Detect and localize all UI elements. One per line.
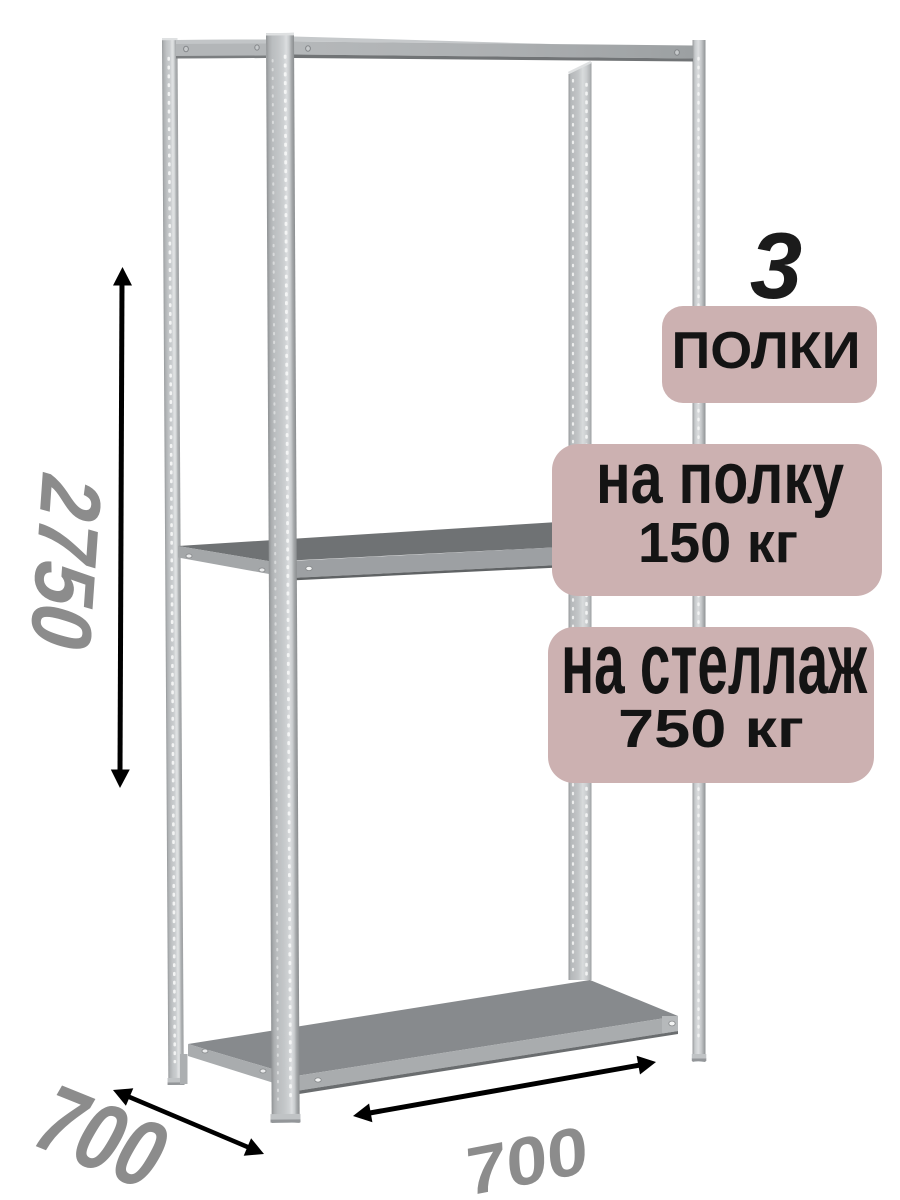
svg-text:на полку: на полку — [596, 439, 844, 519]
svg-text:3: 3 — [750, 213, 802, 318]
svg-text:на стеллаж: на стеллаж — [561, 616, 868, 712]
svg-text:150 кг: 150 кг — [638, 511, 798, 575]
svg-text:ПОЛКИ: ПОЛКИ — [672, 322, 861, 380]
svg-text:2750: 2750 — [13, 464, 119, 663]
svg-text:750 кг: 750 кг — [618, 699, 804, 759]
